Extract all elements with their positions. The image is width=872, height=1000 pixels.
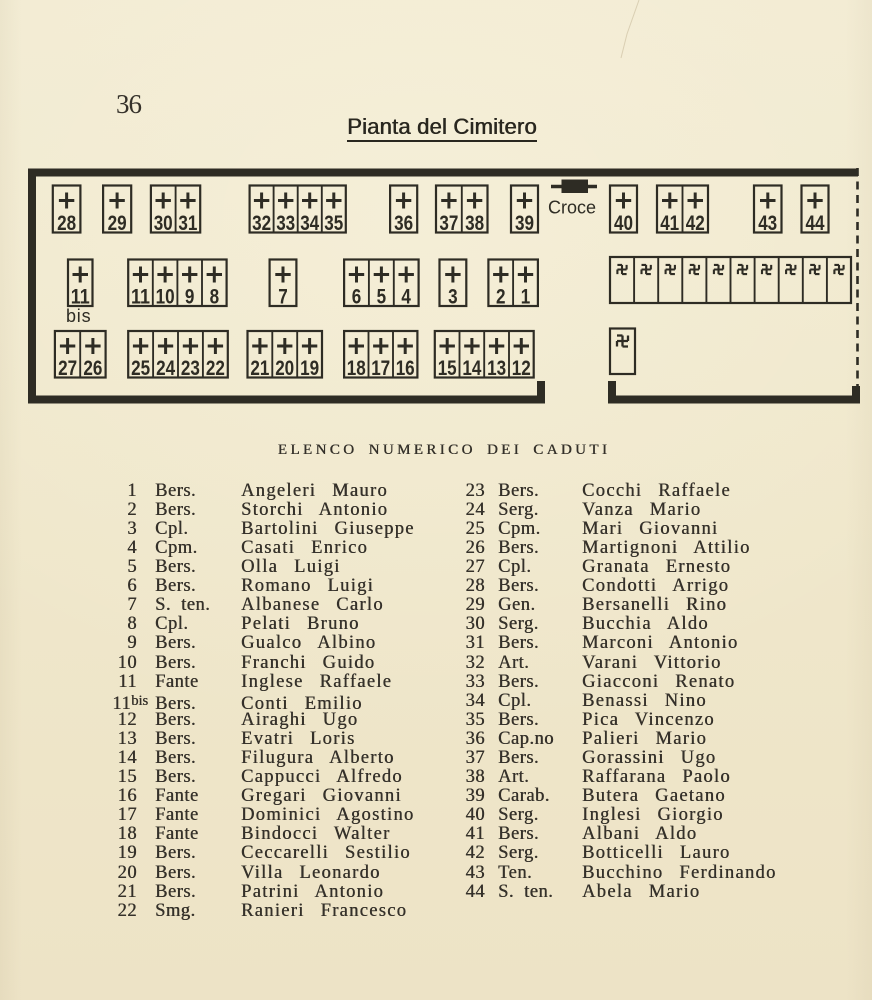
svg-text:31: 31 — [178, 211, 197, 235]
svg-text:36: 36 — [394, 211, 413, 235]
svg-text:42: 42 — [686, 211, 705, 235]
svg-text:33: 33 — [276, 211, 295, 235]
svg-text:20: 20 — [275, 356, 294, 380]
svg-text:37: 37 — [439, 211, 458, 235]
svg-text:6: 6 — [352, 285, 362, 309]
svg-text:28: 28 — [57, 211, 76, 235]
svg-text:17: 17 — [371, 356, 390, 380]
svg-text:44: 44 — [806, 211, 825, 235]
svg-text:14: 14 — [462, 356, 481, 380]
svg-text:3: 3 — [448, 285, 458, 309]
svg-text:bis: bis — [66, 306, 91, 326]
svg-text:19: 19 — [300, 356, 319, 380]
svg-text:21: 21 — [250, 356, 269, 380]
svg-text:24: 24 — [156, 356, 175, 380]
svg-text:23: 23 — [181, 356, 200, 380]
svg-text:40: 40 — [614, 211, 633, 235]
svg-text:4: 4 — [401, 285, 411, 309]
svg-text:12: 12 — [512, 356, 531, 380]
svg-text:27: 27 — [58, 356, 77, 380]
svg-text:2: 2 — [496, 285, 506, 309]
svg-text:38: 38 — [465, 211, 484, 235]
svg-text:5: 5 — [377, 285, 387, 309]
svg-text:30: 30 — [154, 211, 173, 235]
svg-text:13: 13 — [487, 356, 506, 380]
svg-text:Croce: Croce — [548, 198, 596, 218]
svg-text:7: 7 — [278, 285, 288, 309]
svg-text:16: 16 — [396, 356, 415, 380]
svg-text:41: 41 — [660, 211, 679, 235]
svg-text:18: 18 — [347, 356, 366, 380]
svg-text:34: 34 — [300, 211, 319, 235]
svg-text:39: 39 — [515, 211, 534, 235]
svg-text:11: 11 — [71, 285, 90, 309]
svg-text:11: 11 — [131, 285, 150, 309]
svg-text:35: 35 — [324, 211, 343, 235]
svg-text:15: 15 — [438, 356, 457, 380]
svg-text:10: 10 — [156, 285, 175, 309]
svg-text:9: 9 — [185, 285, 195, 309]
svg-text:29: 29 — [108, 211, 127, 235]
svg-text:8: 8 — [210, 285, 220, 309]
svg-text:25: 25 — [131, 356, 150, 380]
svg-text:22: 22 — [206, 356, 225, 380]
svg-text:26: 26 — [83, 356, 102, 380]
svg-text:43: 43 — [758, 211, 777, 235]
svg-text:1: 1 — [521, 285, 531, 309]
svg-text:32: 32 — [252, 211, 271, 235]
